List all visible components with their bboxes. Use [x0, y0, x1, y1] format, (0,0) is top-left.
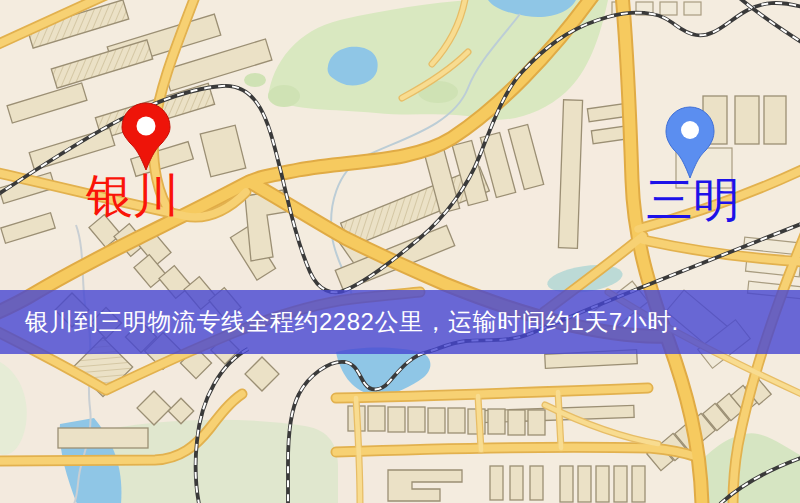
route-info-banner: 银川到三明物流专线全程约2282公里，运输时间约1天7小时.: [0, 290, 800, 354]
origin-city-label: 银川: [86, 172, 180, 219]
destination-city-label: 三明: [646, 176, 740, 223]
map-infographic: 银川 三明 银川到三明物流专线全程约2282公里，运输时间约1天7小时.: [0, 0, 800, 503]
route-info-text: 银川到三明物流专线全程约2282公里，运输时间约1天7小时.: [0, 306, 679, 338]
map-canvas: [0, 0, 800, 503]
